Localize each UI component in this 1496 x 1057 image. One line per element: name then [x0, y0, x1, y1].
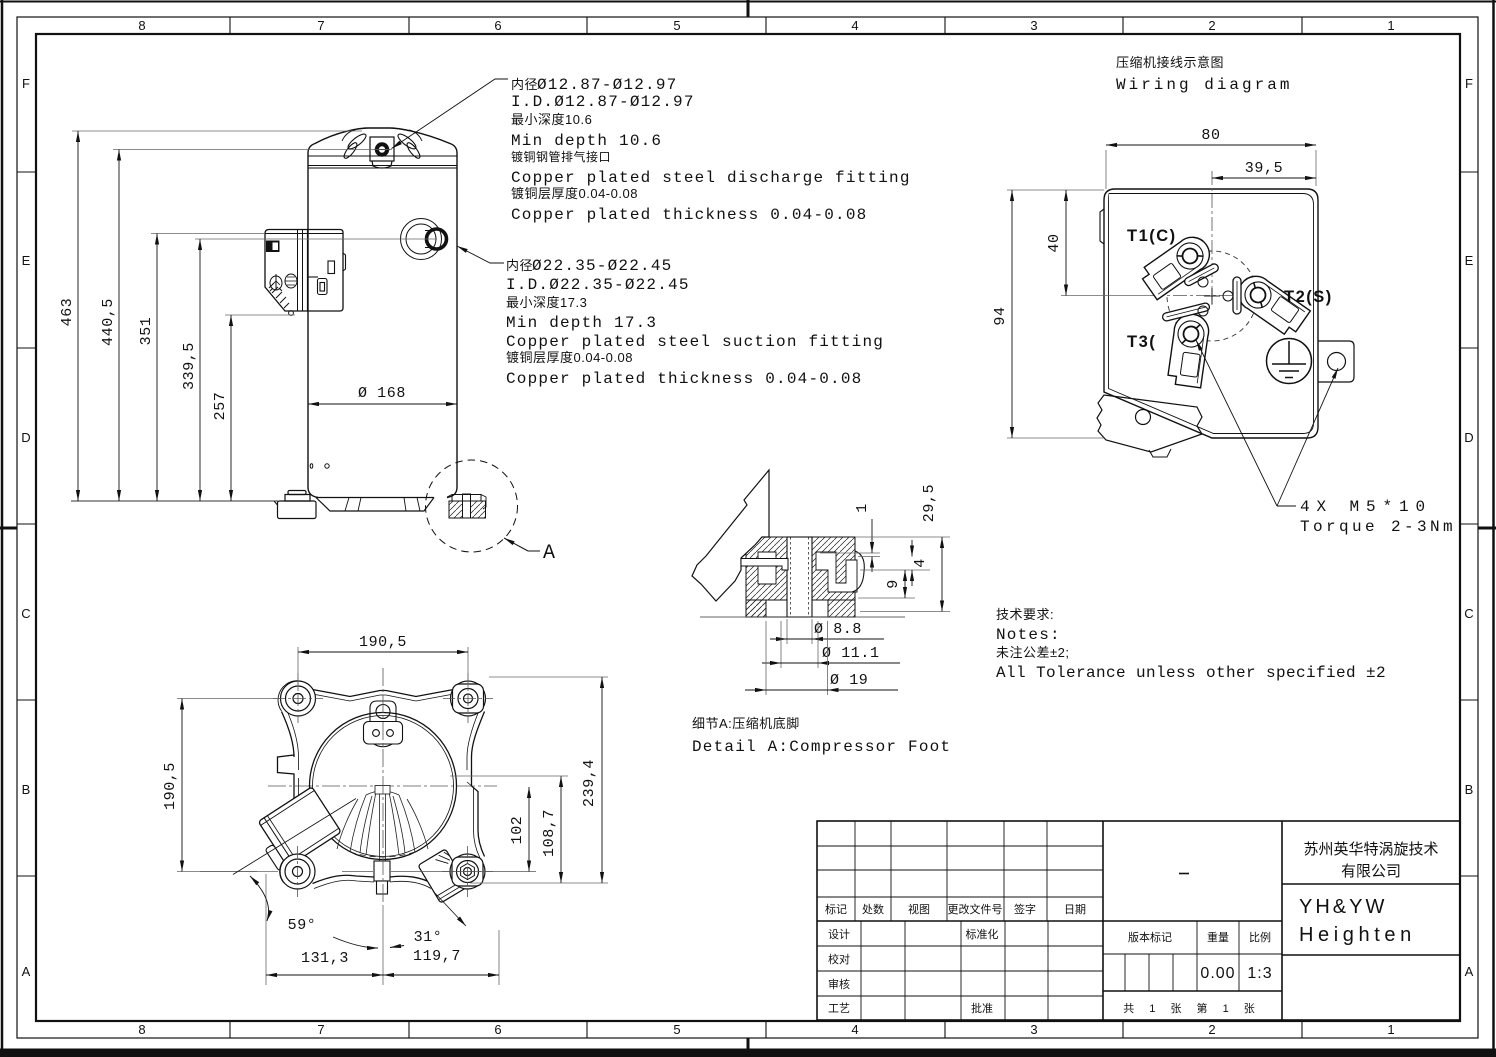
svg-text:A: A: [1465, 964, 1474, 979]
svg-text:131,3: 131,3: [301, 950, 349, 967]
svg-text:257: 257: [212, 392, 229, 421]
svg-text:7: 7: [317, 1022, 324, 1037]
svg-text:5: 5: [673, 18, 680, 33]
svg-text:Ø22.35-Ø22.45: Ø22.35-Ø22.45: [532, 257, 672, 275]
svg-text:审核: 审核: [828, 977, 850, 991]
svg-text:A: A: [22, 964, 31, 979]
svg-text:3: 3: [1030, 1022, 1037, 1037]
svg-text:59°: 59°: [288, 917, 317, 934]
svg-text:4: 4: [851, 18, 858, 33]
svg-text:440,5: 440,5: [100, 298, 117, 346]
svg-text:内径: 内径: [511, 77, 538, 92]
svg-text:A: A: [543, 542, 555, 565]
svg-text:Wiring diagram: Wiring diagram: [1116, 76, 1292, 94]
svg-text:最小深度10.6: 最小深度10.6: [511, 112, 592, 127]
svg-text:更改文件号: 更改文件号: [948, 902, 1003, 916]
svg-text:标准化: 标准化: [966, 927, 999, 941]
svg-text:I.D.Ø12.87-Ø12.97: I.D.Ø12.87-Ø12.97: [511, 93, 695, 111]
svg-text:Ø12.87-Ø12.97: Ø12.87-Ø12.97: [537, 76, 677, 94]
svg-text:E: E: [22, 253, 31, 268]
svg-text:签字: 签字: [1014, 902, 1036, 916]
svg-text:All Tolerance unless other spe: All Tolerance unless other specified ±2: [996, 664, 1386, 682]
svg-text:T1(C): T1(C): [1127, 227, 1177, 245]
svg-text:31°: 31°: [414, 929, 443, 946]
svg-text:有限公司: 有限公司: [1341, 863, 1401, 880]
svg-text:比例: 比例: [1249, 930, 1271, 944]
svg-text:镀铜层厚度0.04-0.08: 镀铜层厚度0.04-0.08: [506, 350, 633, 365]
svg-text:Copper plated steel suction fi: Copper plated steel suction fitting: [506, 333, 884, 351]
svg-text:119,7: 119,7: [413, 948, 461, 965]
svg-text:Min depth 17.3: Min depth 17.3: [506, 314, 657, 332]
svg-text:8: 8: [138, 1022, 145, 1037]
svg-text:I.D.Ø22.35-Ø22.45: I.D.Ø22.35-Ø22.45: [506, 276, 690, 294]
svg-text:0.00: 0.00: [1200, 965, 1235, 982]
svg-text:Copper plated steel discharge: Copper plated steel discharge fitting: [511, 169, 911, 187]
svg-text:Ø 11.1: Ø 11.1: [822, 645, 880, 662]
svg-text:设计: 设计: [828, 928, 850, 941]
svg-text:1: 1: [1387, 18, 1394, 33]
svg-text:80: 80: [1201, 127, 1220, 144]
svg-text:239,4: 239,4: [581, 759, 598, 807]
svg-text:Ø 8.8: Ø 8.8: [814, 621, 862, 638]
svg-text:YH&YW: YH&YW: [1299, 896, 1387, 918]
svg-text:1: 1: [854, 503, 871, 513]
svg-text:视图: 视图: [908, 902, 930, 916]
svg-text:6: 6: [494, 18, 501, 33]
svg-text:9: 9: [885, 579, 902, 589]
svg-text:E: E: [1465, 253, 1474, 268]
svg-text:4: 4: [851, 1022, 858, 1037]
svg-text:F: F: [1465, 76, 1473, 91]
svg-text:7: 7: [317, 18, 324, 33]
svg-text:40: 40: [1046, 233, 1063, 252]
svg-text:技术要求:: 技术要求:: [996, 607, 1054, 622]
svg-text:版本标记: 版本标记: [1128, 930, 1172, 944]
svg-text:29,5: 29,5: [921, 484, 938, 522]
svg-text:190,5: 190,5: [162, 762, 179, 810]
svg-text:共 1 张 第 1 张: 共 1 张 第 1 张: [1123, 1001, 1261, 1015]
svg-text:Detail A:Compressor Foot: Detail A:Compressor Foot: [692, 738, 951, 756]
svg-text:T3(: T3(: [1127, 333, 1156, 351]
svg-text:4: 4: [912, 558, 929, 568]
svg-text:压缩机接线示意图: 压缩机接线示意图: [1116, 55, 1224, 70]
svg-text:C: C: [21, 606, 30, 621]
svg-text:1: 1: [1387, 1022, 1394, 1037]
svg-text:190,5: 190,5: [359, 634, 407, 651]
svg-text:细节A:压缩机底脚: 细节A:压缩机底脚: [692, 716, 800, 731]
svg-text:Torque 2-3Nm: Torque 2-3Nm: [1300, 518, 1456, 536]
svg-text:102: 102: [509, 816, 526, 845]
svg-text:D: D: [1464, 430, 1473, 445]
svg-text:Ø 168: Ø 168: [358, 385, 406, 402]
svg-text:6: 6: [494, 1022, 501, 1037]
svg-text:最小深度17.3: 最小深度17.3: [506, 295, 587, 310]
svg-text:B: B: [22, 782, 31, 797]
svg-text:F: F: [22, 76, 30, 91]
svg-text:108,7: 108,7: [541, 809, 558, 857]
svg-text:339,5: 339,5: [181, 342, 198, 390]
svg-text:处数: 处数: [862, 903, 884, 916]
svg-text:1:3: 1:3: [1247, 965, 1272, 982]
svg-text:批准: 批准: [971, 1001, 993, 1015]
svg-text:Ø 19: Ø 19: [830, 672, 868, 689]
svg-text:校对: 校对: [828, 952, 850, 966]
svg-text:94: 94: [992, 306, 1009, 325]
svg-text:Copper plated thickness 0.04-0: Copper plated thickness 0.04-0.08: [506, 370, 862, 388]
svg-text:2: 2: [1208, 1022, 1215, 1037]
svg-text:Copper plated thickness 0.04-0: Copper plated thickness 0.04-0.08: [511, 206, 867, 224]
svg-text:内径: 内径: [506, 258, 533, 273]
svg-text:工艺: 工艺: [828, 1002, 850, 1015]
svg-text:39,5: 39,5: [1245, 160, 1283, 177]
svg-text:5: 5: [673, 1022, 680, 1037]
svg-text:Min depth 10.6: Min depth 10.6: [511, 132, 662, 150]
svg-text:未注公差±2;: 未注公差±2;: [996, 645, 1069, 660]
svg-text:标记: 标记: [825, 902, 847, 916]
svg-text:苏州英华特涡旋技术: 苏州英华特涡旋技术: [1303, 840, 1438, 858]
svg-text:D: D: [21, 430, 30, 445]
svg-text:8: 8: [138, 18, 145, 33]
svg-text:镀铜层厚度0.04-0.08: 镀铜层厚度0.04-0.08: [511, 186, 638, 201]
svg-text:4X M5*10: 4X M5*10: [1300, 498, 1432, 516]
svg-text:351: 351: [138, 317, 155, 346]
svg-text:T2(S): T2(S): [1284, 288, 1333, 306]
svg-text:日期: 日期: [1064, 903, 1086, 916]
svg-text:B: B: [1465, 782, 1474, 797]
svg-text:重量: 重量: [1207, 930, 1229, 944]
svg-text:C: C: [1464, 606, 1473, 621]
svg-text:Heighten: Heighten: [1299, 924, 1416, 946]
svg-text:463: 463: [59, 298, 76, 327]
svg-text:镀铜钢管排气接口: 镀铜钢管排气接口: [511, 149, 611, 164]
svg-text:3: 3: [1030, 18, 1037, 33]
svg-text:2: 2: [1208, 18, 1215, 33]
svg-text:Notes:: Notes:: [996, 626, 1061, 644]
